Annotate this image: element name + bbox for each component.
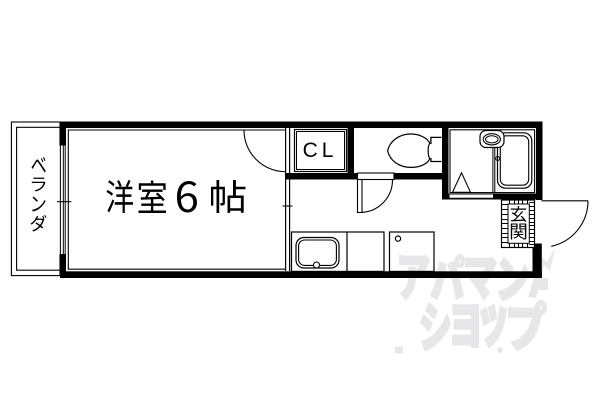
svg-text:CL: CL: [303, 139, 338, 162]
